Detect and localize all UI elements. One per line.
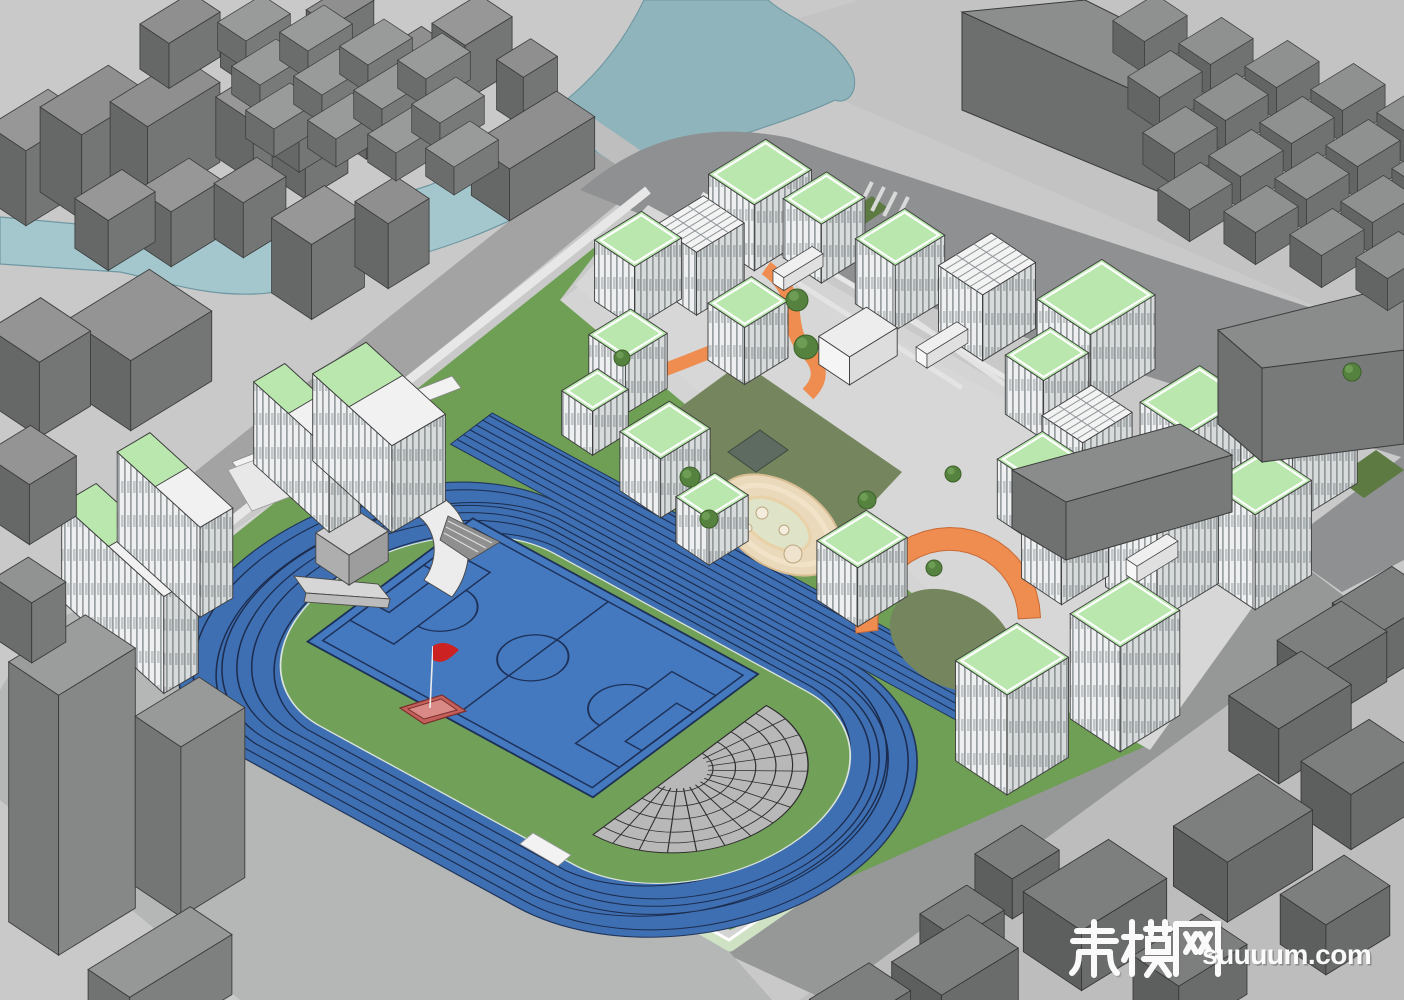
svg-text:suuuum.com: suuuum.com	[1202, 939, 1371, 970]
